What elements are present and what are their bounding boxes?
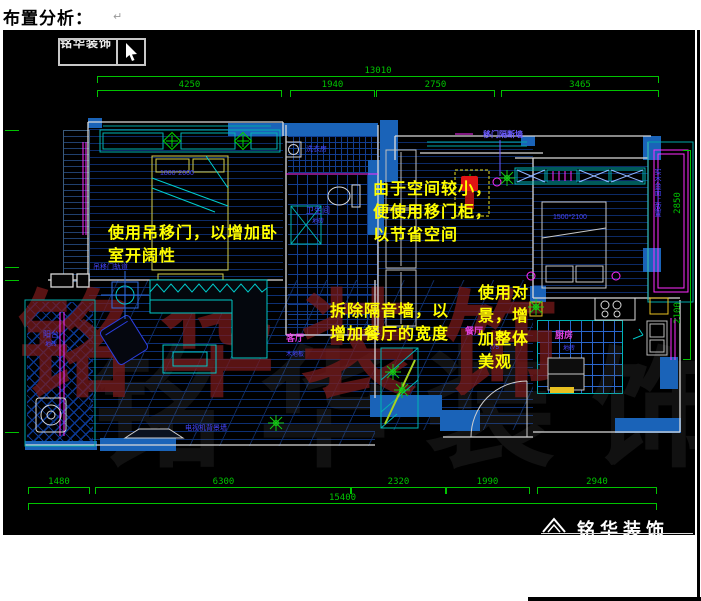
dim-left-tick [5,130,19,131]
armchair [99,314,149,366]
sofa [150,280,267,358]
page-border-bottom [528,597,701,601]
wardrobe-master [100,130,280,152]
room-sublabel-bathroom: 地砖 [312,219,324,226]
tv-icon [125,429,183,438]
wardrobe-bed2 [515,168,645,184]
room-label-balcony: 阳台 [43,330,59,339]
dim-left-tick [5,432,19,433]
label-tv-wall: 电视机背景墙 [185,425,227,433]
cad-drawing-canvas[interactable]: 铭华装饰 铭华装饰 [3,30,695,535]
dim-top-seg4: 3465 [501,90,659,97]
laundry-washer-icon [286,142,301,157]
viewer-toolbar[interactable]: 铭华装饰 [58,38,146,66]
room-label-laundry: 洗衣房 [306,146,327,154]
brand-diamond-icon [541,516,567,533]
label-balcony-right: 实木台面上放置 [653,168,661,217]
stove-icon [595,298,635,320]
sink-icon [633,321,667,355]
floorplan-drawing [3,30,695,535]
label-bed1-size: 1800*2000 [160,170,194,178]
washing-machine-icon [36,398,66,432]
dim-top-seg3: 2750 [376,90,495,97]
kitchen-cabinet-yellow [530,298,668,316]
dim-right-2850: 2850 [673,192,683,214]
toilet-icon [328,185,360,207]
annotation-remove-wall: 拆除隔音墙，以增加餐厅的宽度 [330,300,449,346]
dim-left-tick [5,267,19,268]
dim-right-chain [683,150,691,360]
label-partition-wall: 移门隔断墙 [483,130,523,139]
room-sublabel-kitchen: 地砖 [563,346,575,353]
room-sublabel-balcony: 地砖 [45,342,57,349]
cursor-cell [118,40,144,64]
brand-underline [541,533,693,534]
viewer-brand-cell: 铭华装饰 [60,40,118,64]
label-bed2-size: 1500*2100 [553,214,587,222]
annotation-bedroom-door: 使用吊移门，以增加卧室开阔性 [108,222,278,268]
ceiling-lamp-symbol [101,271,149,319]
dim-right-2100: 2100 [673,302,683,324]
room-label-living: 客厅 [286,333,304,343]
annotation-opposite-view: 使用对景，增加整体美观 [478,282,529,374]
room-label-bathroom: 卫生间 [306,206,330,215]
fridge-icon [548,358,584,393]
paragraph-mark-icon: ↵ [113,10,122,23]
coffee-table [163,345,216,373]
dim-left-tick [5,280,19,281]
dim-top-seg2: 1940 [290,90,375,97]
room-sublabel-living: 木地板 [286,352,304,359]
page-title: 布置分析： [3,4,93,29]
dim-top-seg1: 4250 [97,90,282,97]
page-border-right [697,30,700,601]
cursor-icon [125,43,138,61]
room-label-kitchen: 厨房 [555,330,573,340]
dim-bottom-total: 15400 [28,503,657,510]
annotation-sliding-cabinet: 由于空间较小，便使用移门柜，以节省空间 [373,178,492,247]
